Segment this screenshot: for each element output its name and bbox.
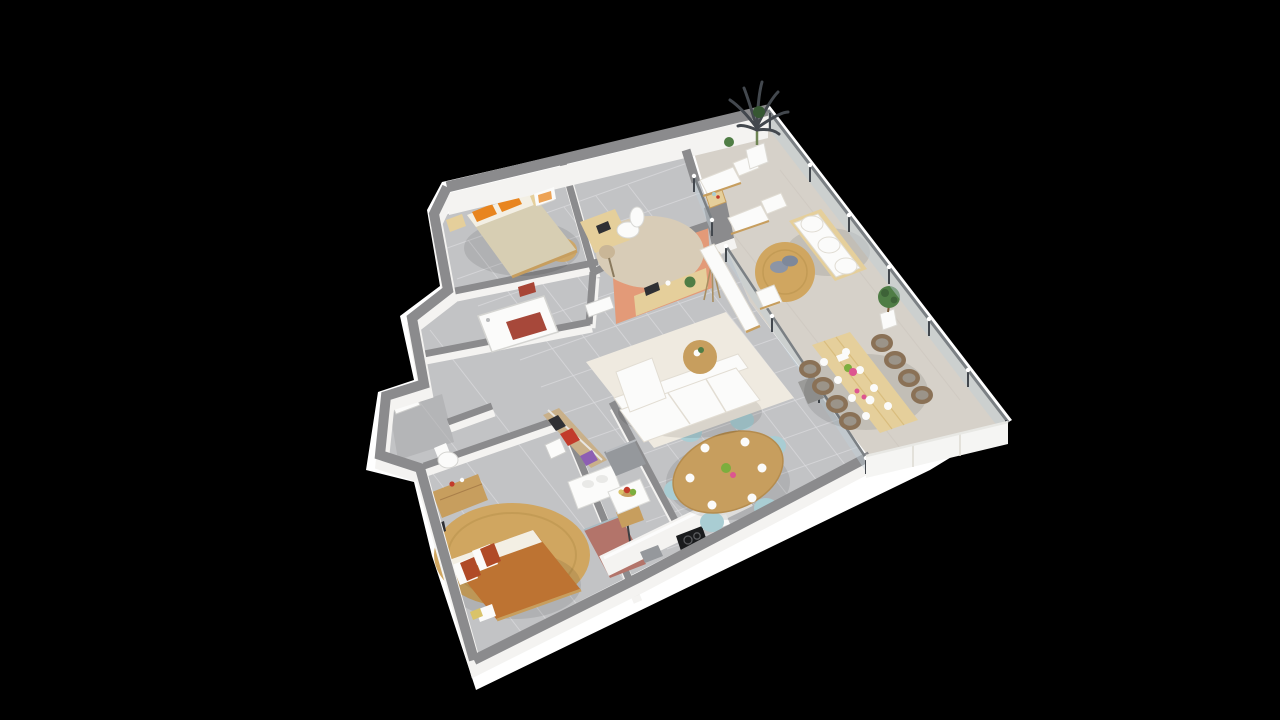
floorplan-screenshot (0, 0, 1280, 720)
floorplan-3d-render (0, 0, 1280, 720)
centerpiece-plant (721, 463, 731, 473)
stump-table-2 (782, 256, 798, 267)
sink-basin-2 (596, 475, 608, 483)
flower-pink (849, 368, 857, 376)
candle (460, 478, 464, 482)
console-plant (685, 277, 696, 288)
palm-foliage-core (753, 106, 765, 118)
tub-faucet (486, 318, 490, 322)
fruit-green (630, 489, 636, 495)
red-vase (449, 481, 454, 486)
sink-basin-1 (582, 480, 594, 488)
coffee-table-plant (698, 347, 704, 353)
pink-drink-1 (855, 389, 860, 394)
office-chair-back (630, 207, 644, 227)
fruit-red (624, 487, 630, 493)
coffee-table (683, 340, 717, 374)
fruit-yellow (618, 489, 623, 494)
magazine (665, 280, 670, 285)
centerpiece-flower (730, 472, 736, 478)
small-leaf (724, 137, 734, 147)
desk-lamp-shade (599, 245, 615, 259)
teapot (866, 396, 875, 405)
toilet-bowl (438, 452, 458, 468)
pink-drink-2 (862, 395, 867, 400)
